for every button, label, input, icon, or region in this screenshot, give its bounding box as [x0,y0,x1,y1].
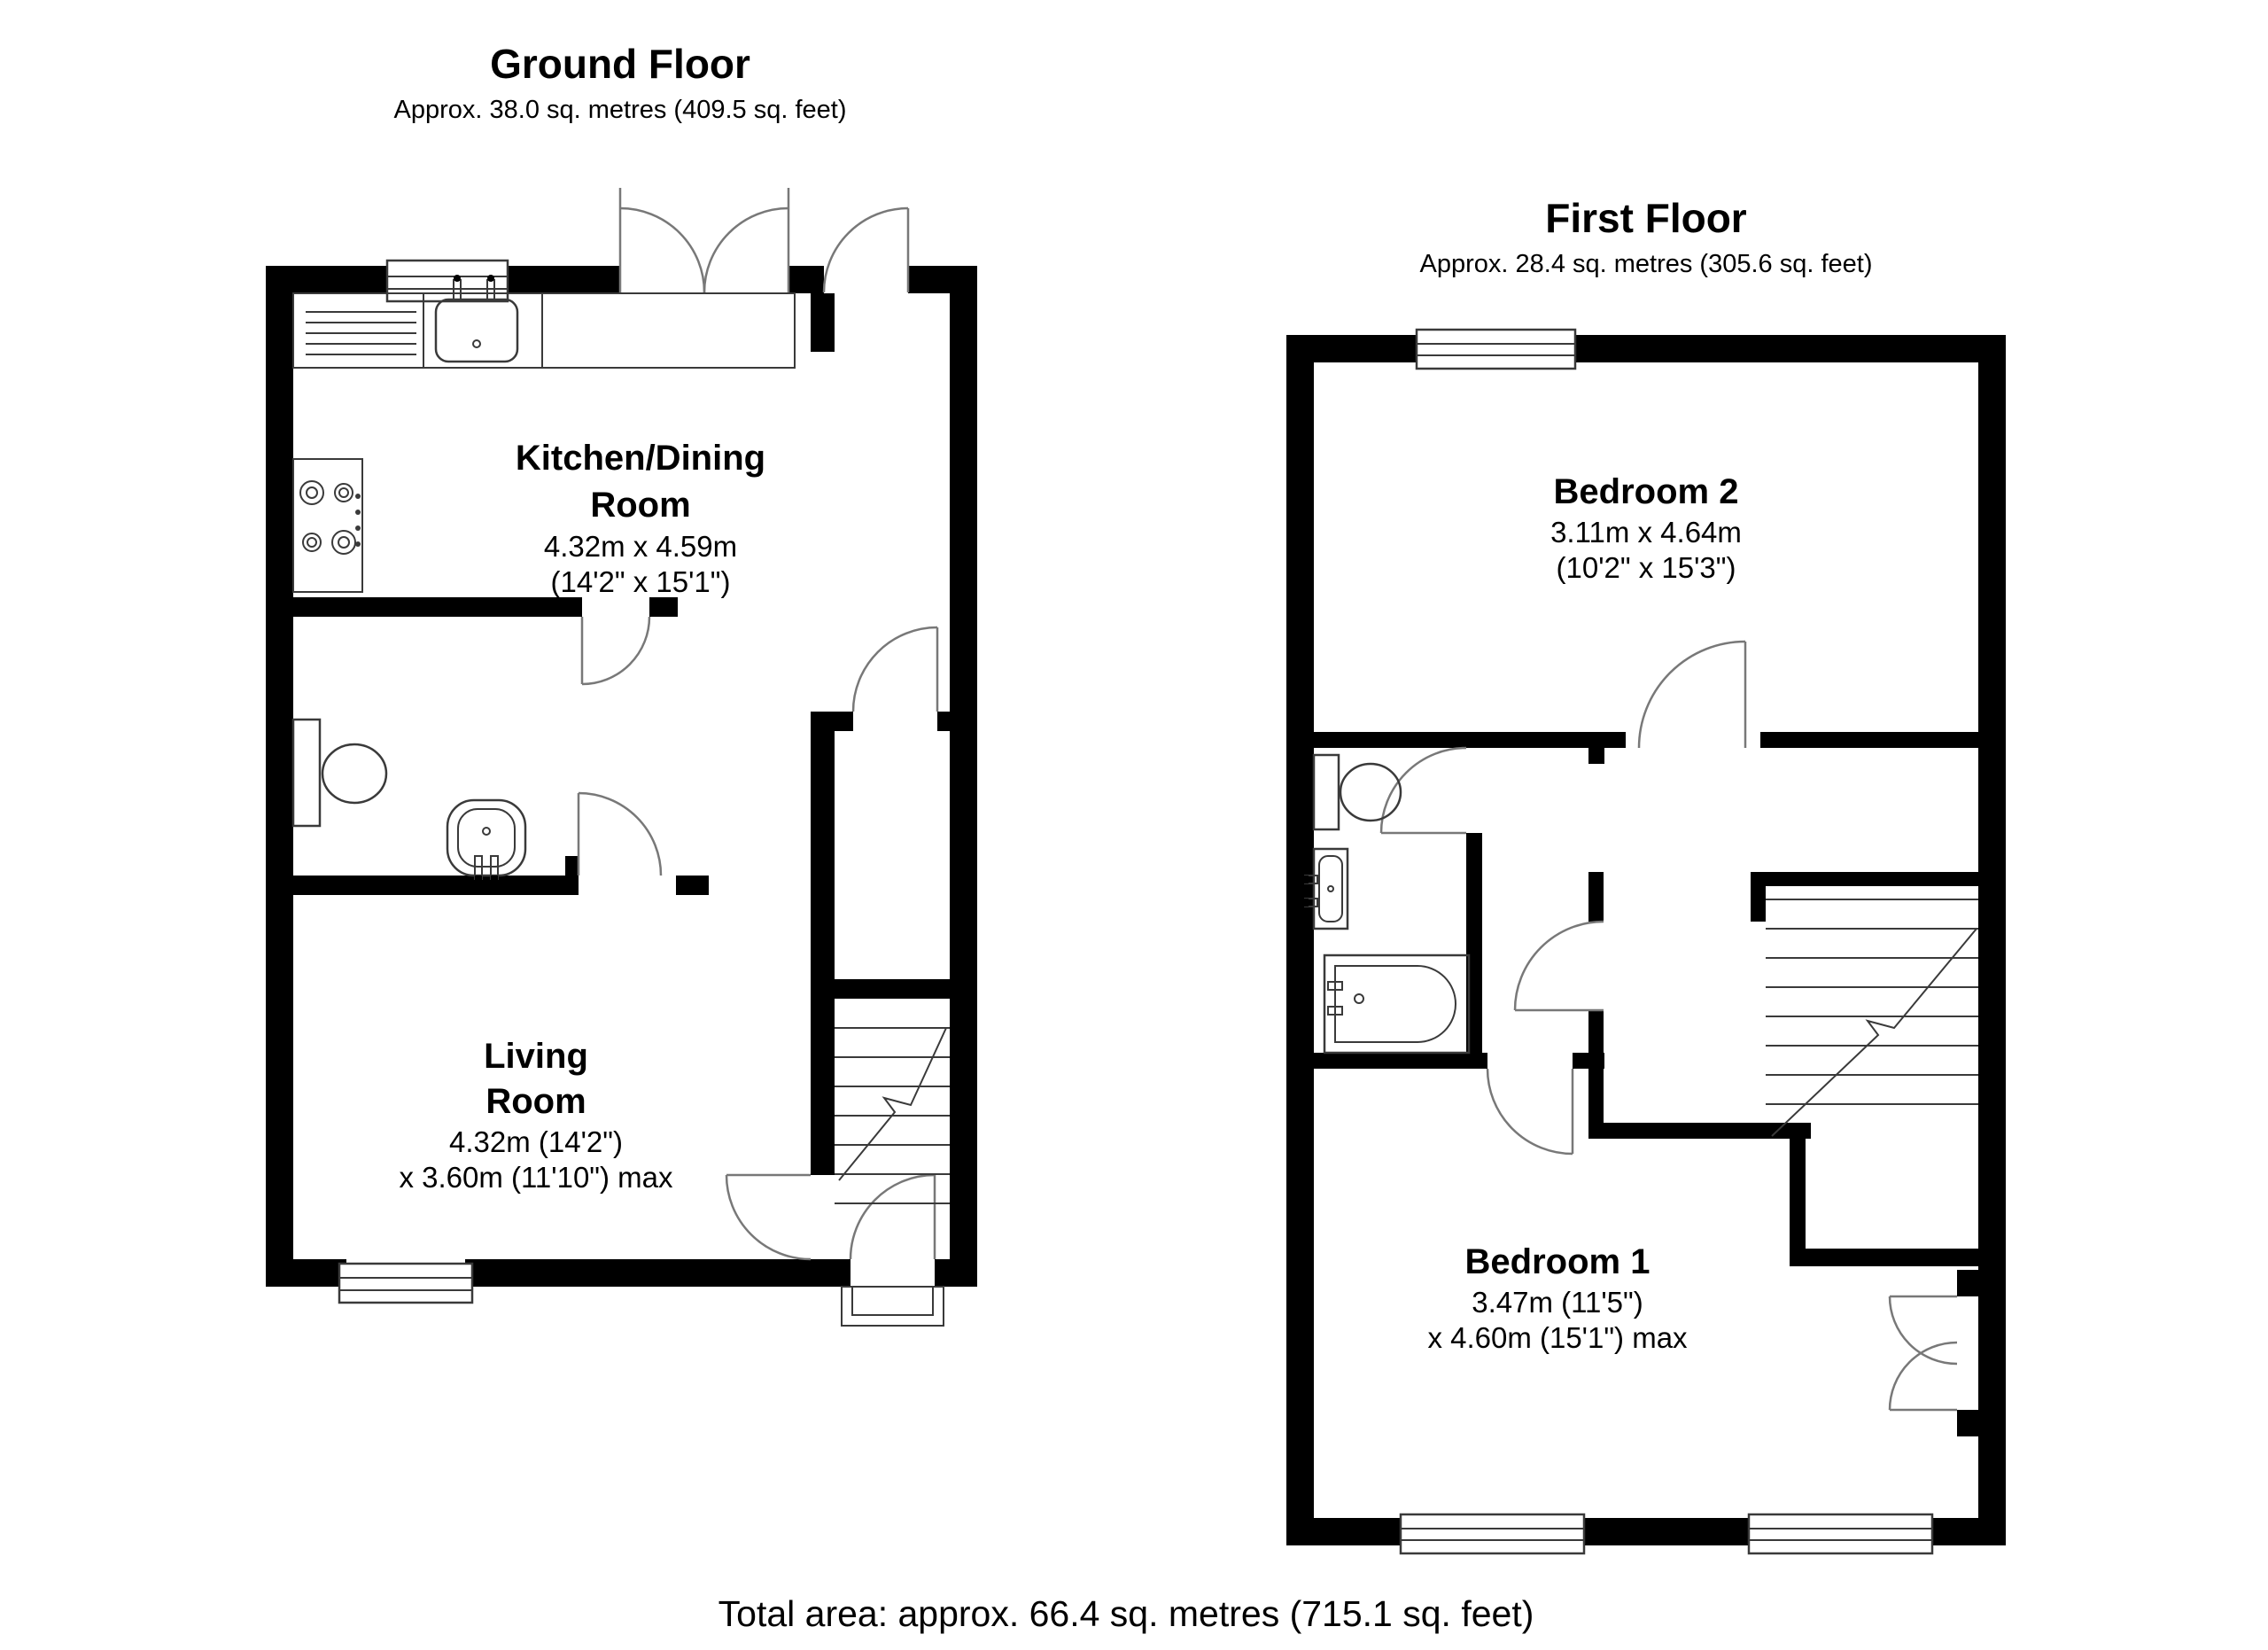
wc-basin [447,800,525,883]
first-floor-header: First Floor Approx. 28.4 sq. metres (305… [1420,195,1873,278]
kitchen-dims-line1: 4.32m x 4.59m [544,530,737,563]
first-floor-plan: Bedroom 2 3.11m x 4.64m (10'2" x 15'3") … [1286,330,2006,1553]
bedroom1-window-right [1749,1514,1932,1553]
stairs-ground [835,1028,950,1203]
bedroom1-dims-line2: x 4.60m (15'1") max [1427,1321,1688,1354]
bedroom2-window [1417,330,1575,369]
bathroom-toilet [1314,755,1401,829]
kitchen-dims-line2: (14'2" x 15'1") [551,565,731,598]
drainer-lines [306,312,416,354]
bedroom2-label: Bedroom 2 3.11m x 4.64m (10'2" x 15'3") [1550,472,1742,584]
bathtub [1324,955,1469,1053]
kitchen-name-line2: Room [590,486,690,525]
first-floor-title: First Floor [1545,195,1747,241]
living-room-label: Living Room 4.32m (14'2") x 3.60m (11'10… [399,1037,673,1194]
hallway-door [853,627,937,712]
wardrobe-doors [1890,1296,1957,1410]
bedroom1-label: Bedroom 1 3.47m (11'5") x 4.60m (15'1") … [1427,1242,1688,1354]
bedroom2-dims-line2: (10'2" x 15'3") [1557,551,1736,584]
kitchen-dining-label: Kitchen/Dining Room 4.32m x 4.59m (14'2"… [516,439,765,598]
ground-floor-header: Ground Floor Approx. 38.0 sq. metres (40… [394,41,847,124]
living-dims-line1: 4.32m (14'2") [449,1125,623,1158]
ground-interior-walls [293,293,950,1175]
rear-door [824,208,908,292]
landing-door [1515,922,1604,1010]
kitchen-name-line1: Kitchen/Dining [516,439,765,478]
first-floor-subtitle: Approx. 28.4 sq. metres (305.6 sq. feet) [1420,250,1873,278]
bedroom1-window-left [1401,1514,1584,1553]
floorplan-drawing: Ground Floor Approx. 38.0 sq. metres (40… [0,0,2268,1650]
ground-floor-plan: Kitchen/Dining Room 4.32m x 4.59m (14'2"… [266,188,977,1326]
wc-door [582,617,649,684]
living-dims-line2: x 3.60m (11'10") max [399,1161,673,1194]
living-room-door [726,1175,811,1259]
ground-floor-title: Ground Floor [490,41,750,87]
porch-step [842,1287,944,1326]
wc-toilet [293,720,386,826]
front-door [850,1175,935,1259]
bedroom2-door [1639,642,1745,748]
bedroom1-door [1487,1069,1573,1154]
stairs-first [1766,899,1978,1136]
living-name-line2: Room [485,1082,586,1121]
bedroom1-dims-line1: 3.47m (11'5") [1472,1286,1643,1319]
living-room-window [339,1264,472,1303]
french-doors [620,188,788,292]
total-area-label: Total area: approx. 66.4 sq. metres (715… [718,1593,1534,1634]
bedroom1-name: Bedroom 1 [1465,1242,1651,1281]
floorplan-page: Ground Floor Approx. 38.0 sq. metres (40… [0,0,2268,1650]
bathroom-door [1381,748,1466,833]
bedroom2-name: Bedroom 2 [1554,472,1739,511]
hob [293,459,362,592]
wc-inner-door [579,793,661,876]
living-name-line1: Living [484,1037,588,1076]
bedroom2-dims-line1: 3.11m x 4.64m [1550,516,1742,549]
ground-floor-subtitle: Approx. 38.0 sq. metres (409.5 sq. feet) [394,96,847,124]
